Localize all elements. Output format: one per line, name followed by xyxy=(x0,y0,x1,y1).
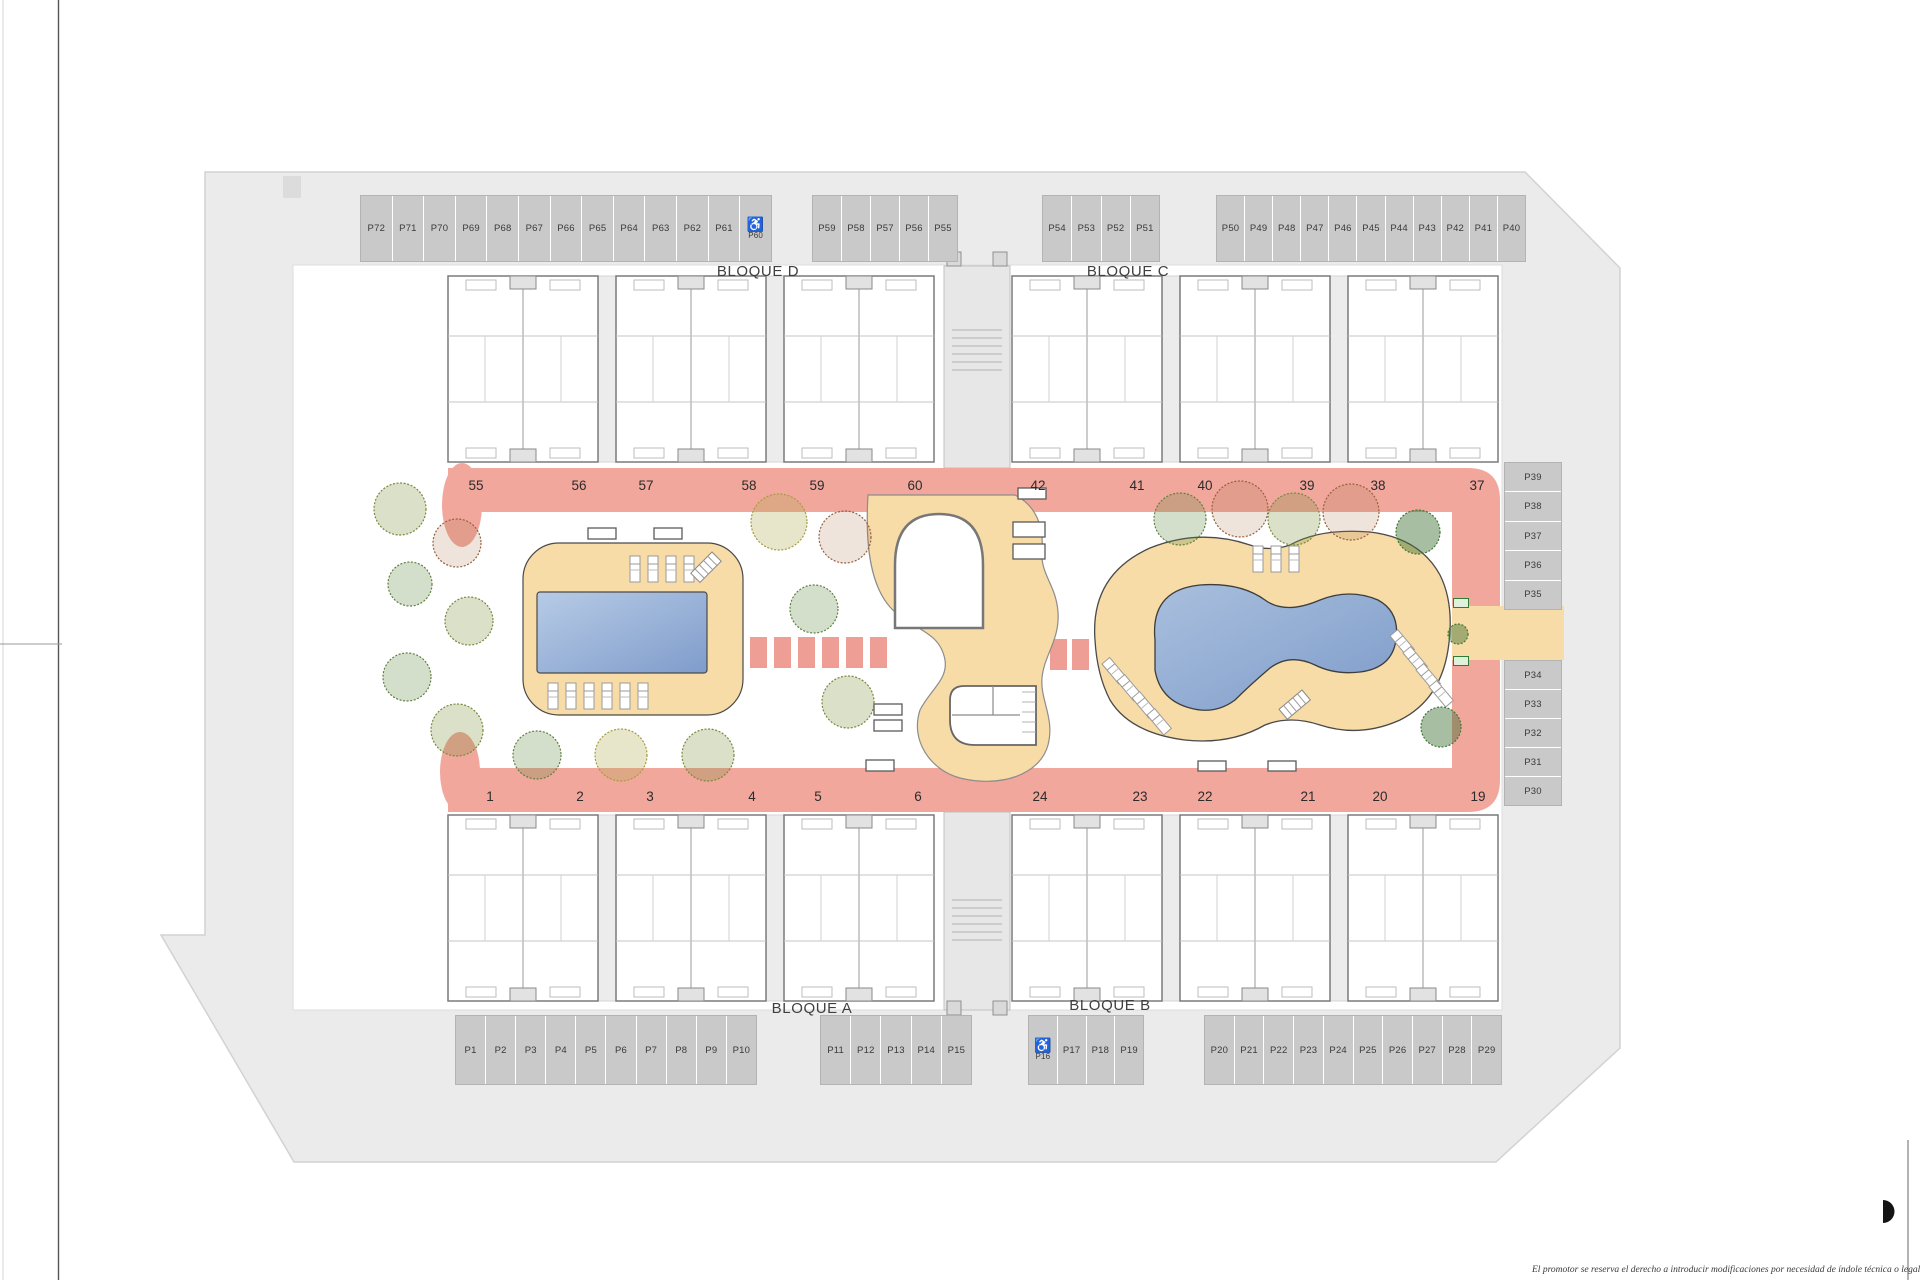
parking-stall: P70 xyxy=(424,196,455,261)
parking-stall: P23 xyxy=(1294,1016,1323,1084)
unit-number: 42 xyxy=(1030,478,1045,493)
parking-stall: P37 xyxy=(1505,522,1561,550)
right-pool-area xyxy=(1095,531,1454,741)
parking-stall: P45 xyxy=(1357,196,1384,261)
parking-stall: P69 xyxy=(456,196,487,261)
entrance-sign xyxy=(1453,598,1469,608)
unit-number: 23 xyxy=(1132,789,1147,804)
parking-stall: P41 xyxy=(1470,196,1497,261)
parking-stall: P6 xyxy=(606,1016,635,1084)
parking-stall: P46 xyxy=(1329,196,1356,261)
parking-stall-disabled: ♿ P60 xyxy=(740,196,771,261)
parking-stall: P66 xyxy=(551,196,582,261)
block-label-a: BLOQUE A xyxy=(772,1000,853,1017)
parking-stall: P28 xyxy=(1443,1016,1472,1084)
parking-stall: P40 xyxy=(1498,196,1525,261)
disclaimer-text: El promotor se reserva el derecho a intr… xyxy=(1532,1265,1920,1275)
parking-stall: P54 xyxy=(1043,196,1071,261)
unit-number: 58 xyxy=(741,478,756,493)
arched-court xyxy=(895,514,983,628)
parking-stall: P31 xyxy=(1505,748,1561,776)
unit-number: 56 xyxy=(571,478,586,493)
parking-stall: P68 xyxy=(487,196,518,261)
parking-stall: P15 xyxy=(942,1016,971,1084)
block-label-d: BLOQUE D xyxy=(717,263,799,280)
parking-group-top-left: P72P71P70P69P68P67P66P65P64P63P62P61 ♿ P… xyxy=(360,195,772,262)
parking-stall: P61 xyxy=(709,196,740,261)
unit-number: 22 xyxy=(1197,789,1212,804)
parking-group-top-center: P59P58P57P56P55 xyxy=(812,195,958,262)
parking-stall: P32 xyxy=(1505,719,1561,747)
unit-number: 57 xyxy=(638,478,653,493)
unit-number: 37 xyxy=(1469,478,1484,493)
parking-stall: P58 xyxy=(842,196,870,261)
parking-stall: P44 xyxy=(1386,196,1413,261)
parking-stall: P47 xyxy=(1301,196,1328,261)
parking-stall: P65 xyxy=(582,196,613,261)
parking-stall: P53 xyxy=(1072,196,1100,261)
unit-number: 5 xyxy=(814,789,822,804)
unit-number: 39 xyxy=(1299,478,1314,493)
parking-stall: P1 xyxy=(456,1016,485,1084)
unit-number: 59 xyxy=(809,478,824,493)
parking-stall: P27 xyxy=(1413,1016,1442,1084)
apartment-building xyxy=(1012,815,1162,1001)
apartment-building xyxy=(1348,815,1498,1001)
parking-stall: P29 xyxy=(1472,1016,1501,1084)
parking-stall: P52 xyxy=(1102,196,1130,261)
left-pool-area xyxy=(523,543,743,715)
unit-number: 6 xyxy=(914,789,922,804)
left-pool xyxy=(537,592,707,673)
apartment-building xyxy=(1180,276,1330,462)
apartment-building xyxy=(784,815,934,1001)
parking-stall: P25 xyxy=(1354,1016,1383,1084)
parking-stall: P2 xyxy=(486,1016,515,1084)
apartment-building xyxy=(1180,815,1330,1001)
parking-stall: P12 xyxy=(851,1016,880,1084)
parking-stall: P19 xyxy=(1115,1016,1143,1084)
unit-number: 3 xyxy=(646,789,654,804)
parking-group-bottom-right: P20P21P22P23P24P25P26P27P28P29 xyxy=(1204,1015,1502,1085)
wheelchair-icon: ♿ xyxy=(1034,1039,1051,1052)
unit-number: 41 xyxy=(1129,478,1144,493)
entrance-sign xyxy=(1453,656,1469,666)
parking-stall: P43 xyxy=(1414,196,1441,261)
parking-stall: P57 xyxy=(871,196,899,261)
parking-stall: P11 xyxy=(821,1016,850,1084)
parking-stall: P4 xyxy=(546,1016,575,1084)
parking-stall: P5 xyxy=(576,1016,605,1084)
parking-group-bottom-center2: ♿ P16 P17P18P19 xyxy=(1028,1015,1144,1085)
parking-stall: P7 xyxy=(637,1016,666,1084)
parking-stall: P14 xyxy=(912,1016,941,1084)
parking-stall: P34 xyxy=(1505,661,1561,689)
parking-stall: P62 xyxy=(677,196,708,261)
block-label-c: BLOQUE C xyxy=(1087,263,1169,280)
apartment-building xyxy=(1348,276,1498,462)
parking-stall: P10 xyxy=(727,1016,756,1084)
parking-group-bottom-left: P1P2P3P4P5P6P7P8P9P10 xyxy=(455,1015,757,1085)
parking-stall: P17 xyxy=(1058,1016,1086,1084)
unit-number: 24 xyxy=(1032,789,1047,804)
parking-group-right-lower: P34P33P32P31P30 xyxy=(1504,660,1562,806)
apartment-building xyxy=(784,276,934,462)
parking-stall: P8 xyxy=(667,1016,696,1084)
parking-stall: P63 xyxy=(645,196,676,261)
parking-group-top-center2: P54P53P52P51 xyxy=(1042,195,1160,262)
unit-number: 60 xyxy=(907,478,922,493)
parking-stall: P9 xyxy=(697,1016,726,1084)
parking-stall: P48 xyxy=(1273,196,1300,261)
parking-stall: P20 xyxy=(1205,1016,1234,1084)
parking-stall: P3 xyxy=(516,1016,545,1084)
parking-stall: P59 xyxy=(813,196,841,261)
apartment-building xyxy=(616,276,766,462)
unit-number: 1 xyxy=(486,789,494,804)
unit-number: 19 xyxy=(1470,789,1485,804)
parking-stall: P64 xyxy=(614,196,645,261)
parking-stall: P21 xyxy=(1235,1016,1264,1084)
apartment-building xyxy=(1012,276,1162,462)
unit-number: 20 xyxy=(1372,789,1387,804)
parking-stall: P55 xyxy=(929,196,957,261)
apartment-building xyxy=(616,815,766,1001)
parking-stall: P38 xyxy=(1505,492,1561,520)
parking-stall: P26 xyxy=(1383,1016,1412,1084)
parking-stall: P35 xyxy=(1505,581,1561,609)
parking-stall: P42 xyxy=(1442,196,1469,261)
site-plan-drawing xyxy=(0,0,1920,1280)
parking-stall: P22 xyxy=(1264,1016,1293,1084)
apartment-building xyxy=(448,276,598,462)
parking-stall: P39 xyxy=(1505,463,1561,491)
parking-stall: P18 xyxy=(1087,1016,1115,1084)
parking-stall: P49 xyxy=(1245,196,1272,261)
parking-stall: P56 xyxy=(900,196,928,261)
unit-number: 38 xyxy=(1370,478,1385,493)
parking-group-right-upper: P39P38P37P36P35 xyxy=(1504,462,1562,610)
parking-stall: P36 xyxy=(1505,551,1561,579)
unit-number: 55 xyxy=(468,478,483,493)
parking-group-top-right: P50P49P48P47P46P45P44P43P42P41P40 xyxy=(1216,195,1526,262)
block-label-b: BLOQUE B xyxy=(1069,997,1151,1014)
parking-stall: P13 xyxy=(881,1016,910,1084)
parking-stall: P33 xyxy=(1505,690,1561,718)
parking-stall: P24 xyxy=(1324,1016,1353,1084)
parking-stall: P51 xyxy=(1131,196,1159,261)
unit-number: 40 xyxy=(1197,478,1212,493)
page-mark-icon xyxy=(1883,1200,1895,1223)
parking-stall: P72 xyxy=(361,196,392,261)
parking-stall: P71 xyxy=(393,196,424,261)
parking-stall: P50 xyxy=(1217,196,1244,261)
parking-stall: P30 xyxy=(1505,777,1561,805)
unit-number: 2 xyxy=(576,789,584,804)
wheelchair-icon: ♿ xyxy=(747,218,764,231)
site-plan-page: P72P71P70P69P68P67P66P65P64P63P62P61 ♿ P… xyxy=(0,0,1920,1280)
parking-stall: P67 xyxy=(519,196,550,261)
unit-number: 4 xyxy=(748,789,756,804)
apartment-building xyxy=(448,815,598,1001)
unit-number: 21 xyxy=(1300,789,1315,804)
parking-group-bottom-center: P11P12P13P14P15 xyxy=(820,1015,972,1085)
parking-stall-disabled: ♿ P16 xyxy=(1029,1016,1057,1084)
